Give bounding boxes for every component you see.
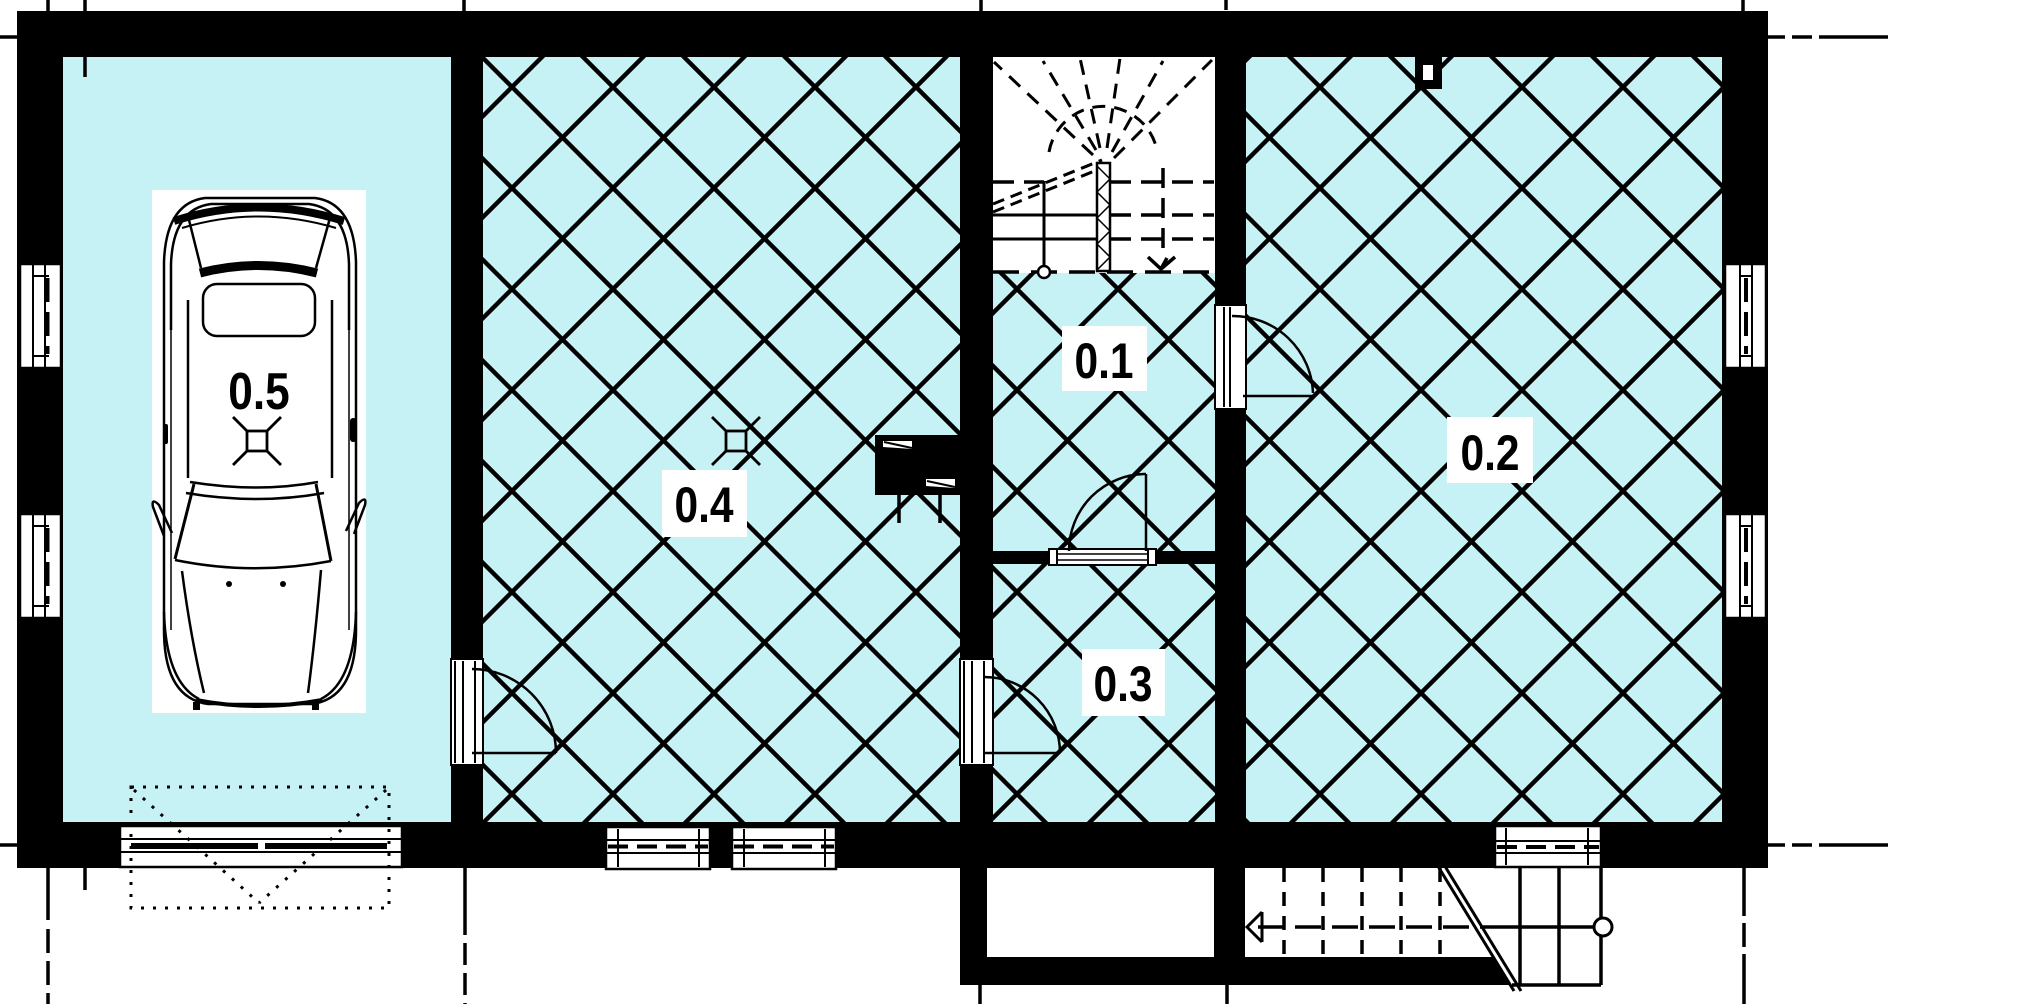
svg-text:0.4: 0.4 <box>674 477 733 533</box>
svg-text:0.3: 0.3 <box>1093 656 1152 712</box>
svg-text:0.2: 0.2 <box>1460 425 1519 481</box>
svg-text:0.5: 0.5 <box>228 363 289 421</box>
svg-text:0.1: 0.1 <box>1074 333 1133 389</box>
